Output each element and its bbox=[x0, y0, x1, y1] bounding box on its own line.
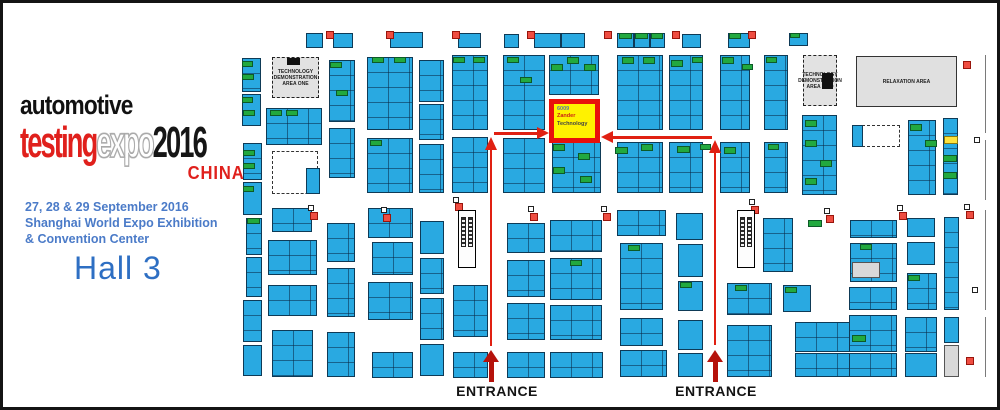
hall-wall bbox=[985, 140, 986, 200]
booth-cell-green bbox=[551, 64, 563, 71]
booth-cell-green bbox=[766, 57, 777, 63]
booth-block bbox=[372, 352, 413, 378]
booth-block bbox=[907, 218, 935, 237]
booth-cell-green bbox=[370, 140, 382, 146]
booth-cell-green bbox=[330, 62, 342, 68]
technology-demonstration-area-two-label: TECHNOLOGY DEMONSTRATION AREA TWO bbox=[796, 70, 844, 92]
booth-block bbox=[453, 285, 488, 337]
booth-cell-green bbox=[641, 144, 653, 151]
booth-cell-green bbox=[943, 172, 957, 179]
booth-cell-green bbox=[243, 186, 254, 192]
booth-cell-green bbox=[805, 178, 817, 185]
booth-block bbox=[849, 353, 897, 377]
booth-block bbox=[246, 257, 262, 297]
booth-block-gray bbox=[852, 262, 880, 278]
booth-cell-green bbox=[242, 97, 253, 103]
booth-block bbox=[849, 287, 897, 310]
pillar-marker-icon bbox=[963, 61, 971, 69]
booth-cell-green bbox=[270, 110, 282, 116]
booth-block bbox=[329, 128, 355, 178]
booth-block bbox=[367, 57, 413, 130]
booth-cell-green bbox=[820, 160, 832, 167]
booth-cell-green bbox=[805, 120, 817, 127]
pillar-marker-icon bbox=[530, 213, 538, 221]
booth-cell-green bbox=[729, 33, 741, 39]
route-line-left-horizontal bbox=[494, 132, 538, 135]
booth-block bbox=[272, 208, 312, 232]
booth-block bbox=[306, 168, 320, 194]
route-arrowhead-right-up-icon bbox=[709, 140, 721, 153]
booth-cell-green bbox=[908, 275, 920, 281]
booth-cell-green bbox=[580, 176, 592, 183]
booth-cell-green bbox=[680, 282, 692, 288]
booth-block bbox=[507, 260, 545, 297]
booth-block bbox=[617, 55, 663, 130]
tech-area-one-stage bbox=[287, 58, 300, 65]
booth-block bbox=[850, 220, 897, 238]
booth-block bbox=[504, 34, 519, 48]
booth-block bbox=[272, 330, 313, 377]
entrance-label-right: ENTRANCE bbox=[656, 383, 776, 399]
booth-cell-green bbox=[735, 285, 747, 291]
booth-block-gray bbox=[944, 345, 959, 377]
booth-block bbox=[420, 258, 444, 294]
route-line-right-vertical bbox=[714, 153, 716, 345]
entrance-arrowhead-right-icon bbox=[707, 350, 723, 362]
booth-block bbox=[306, 33, 323, 48]
booth-block bbox=[764, 55, 788, 130]
highlighted-booth-name2: Technology bbox=[554, 121, 595, 128]
booth-block bbox=[795, 322, 853, 352]
booth-block bbox=[368, 282, 413, 320]
booth-cell-green bbox=[567, 57, 579, 64]
booth-block bbox=[727, 325, 772, 377]
entrance-arrow-left bbox=[489, 360, 494, 382]
pillar-marker-icon bbox=[310, 212, 318, 220]
booth-block bbox=[550, 220, 602, 252]
technology-demonstration-area-one-label: TECHNOLOGY DEMONSTRATION AREA ONE bbox=[272, 67, 320, 89]
highlighted-booth-number: 6009 bbox=[554, 104, 595, 113]
route-line-right-horizontal bbox=[613, 136, 712, 139]
booth-cell-green bbox=[860, 244, 872, 250]
booth-block bbox=[550, 352, 603, 378]
booth-block bbox=[678, 244, 703, 277]
route-arrowhead-into-booth-right-icon bbox=[601, 131, 613, 143]
relaxation-area: RELAXATION AREA bbox=[856, 56, 957, 107]
booth-block bbox=[420, 344, 444, 376]
hall-wall bbox=[985, 210, 986, 310]
pillar-marker-icon bbox=[604, 31, 612, 39]
booth-cell-green bbox=[852, 335, 866, 342]
column-marker-icon bbox=[308, 205, 314, 211]
booth-cell-green bbox=[671, 60, 683, 67]
booth-cell-green bbox=[677, 146, 690, 153]
pillar-marker-icon bbox=[899, 212, 907, 220]
column-marker-icon bbox=[964, 204, 970, 210]
booth-cell-green bbox=[724, 147, 736, 154]
column-marker-icon bbox=[528, 206, 534, 212]
booth-block bbox=[368, 208, 413, 238]
booth-block bbox=[503, 138, 545, 193]
pillar-marker-icon bbox=[383, 214, 391, 222]
booth-cell-green bbox=[473, 57, 485, 63]
entrance-arrowhead-left-icon bbox=[483, 350, 499, 362]
booth-cell-green bbox=[242, 74, 254, 80]
booth-block bbox=[268, 285, 317, 316]
booth-block bbox=[727, 283, 772, 315]
booth-block bbox=[534, 33, 561, 48]
pillar-marker-icon bbox=[966, 357, 974, 365]
booth-block bbox=[507, 223, 545, 253]
booth-cell-green bbox=[286, 110, 298, 116]
escalator-icon bbox=[737, 210, 755, 268]
booth-block bbox=[420, 298, 444, 340]
booth-block bbox=[420, 221, 444, 254]
booth-cell-green bbox=[635, 33, 648, 39]
booth-block bbox=[243, 300, 262, 342]
booth-block bbox=[327, 332, 355, 377]
booth-cell-green bbox=[336, 90, 348, 96]
booth-cell-green bbox=[520, 77, 532, 83]
booth-block bbox=[243, 143, 262, 180]
booth-block bbox=[676, 213, 703, 240]
booth-cell-green bbox=[247, 218, 260, 224]
booth-block bbox=[617, 210, 666, 236]
column-marker-icon bbox=[381, 207, 387, 213]
booth-block bbox=[419, 144, 444, 193]
pillar-marker-icon bbox=[748, 31, 756, 39]
booth-cell-green bbox=[242, 61, 253, 67]
highlighted-booth-name: Zander bbox=[554, 113, 595, 120]
column-marker-icon bbox=[897, 205, 903, 211]
booth-block bbox=[795, 353, 853, 377]
booth-block bbox=[327, 223, 355, 262]
column-marker-icon bbox=[974, 137, 980, 143]
booth-block bbox=[390, 32, 423, 48]
booth-cell-green bbox=[910, 124, 922, 131]
column-marker-icon bbox=[453, 197, 459, 203]
booth-block bbox=[372, 242, 413, 275]
pillar-marker-icon bbox=[527, 31, 535, 39]
booth-cell-green bbox=[722, 57, 734, 64]
booth-block bbox=[849, 315, 897, 352]
booth-block bbox=[620, 243, 663, 310]
highlighted-booth: 6009 Zander Technology bbox=[549, 99, 600, 143]
hall-wall bbox=[985, 55, 986, 133]
booth-block bbox=[503, 55, 545, 130]
pillar-marker-icon bbox=[603, 213, 611, 221]
booth-block bbox=[243, 345, 262, 376]
booth-block bbox=[905, 317, 937, 352]
pillar-marker-icon bbox=[966, 211, 974, 219]
hall-wall bbox=[985, 317, 986, 377]
booth-block bbox=[419, 60, 444, 102]
booth-block bbox=[327, 268, 355, 317]
route-arrowhead-into-booth-left-icon bbox=[537, 127, 549, 139]
booth-cell-green bbox=[372, 57, 384, 63]
booth-cell-green bbox=[643, 57, 655, 64]
entrance-label-left: ENTRANCE bbox=[437, 383, 557, 399]
booth-cell-green bbox=[584, 64, 596, 71]
booth-cell-green bbox=[615, 147, 628, 154]
booth-block bbox=[944, 217, 959, 310]
booth-block bbox=[620, 350, 667, 377]
booth-cell-green bbox=[243, 150, 255, 156]
booth-block bbox=[763, 218, 793, 272]
route-line-left-vertical bbox=[490, 150, 492, 346]
booth-block bbox=[561, 33, 585, 48]
booth-cell-green bbox=[553, 167, 565, 174]
booth-cell-green bbox=[578, 153, 590, 160]
booth-cell-green bbox=[742, 64, 753, 70]
booth-cell-green bbox=[628, 245, 640, 251]
booth-cell-green bbox=[692, 57, 703, 63]
booth-cell-green bbox=[394, 57, 406, 63]
booth-block bbox=[550, 305, 602, 340]
column-marker-icon bbox=[749, 199, 755, 205]
booth-block bbox=[507, 303, 545, 340]
floor-plan: TECHNOLOGY DEMONSTRATION AREA ONE TECHNO… bbox=[0, 0, 1000, 410]
booth-block bbox=[678, 353, 703, 377]
booth-cell-green bbox=[553, 144, 565, 151]
booth-block bbox=[333, 33, 353, 48]
escalator-icon bbox=[458, 210, 476, 268]
booth-cell-green bbox=[785, 287, 797, 293]
booth-block bbox=[852, 125, 863, 147]
booth-block bbox=[620, 318, 663, 346]
entrance-arrow-right bbox=[713, 360, 718, 382]
booth-block bbox=[682, 34, 701, 48]
booth-block bbox=[452, 137, 488, 193]
booth-block bbox=[908, 120, 936, 195]
pillar-marker-icon bbox=[452, 31, 460, 39]
booth-block bbox=[905, 353, 937, 377]
booth-cell-green bbox=[570, 260, 582, 266]
booth-cell-green bbox=[243, 110, 255, 116]
column-marker-icon bbox=[824, 208, 830, 214]
route-arrowhead-left-up-icon bbox=[485, 137, 497, 150]
booth-cell-green bbox=[243, 163, 255, 169]
booth-block-gold bbox=[944, 136, 958, 144]
booth-block bbox=[907, 242, 935, 265]
pillar-marker-icon bbox=[826, 215, 834, 223]
booth-cell-green bbox=[768, 144, 779, 150]
booth-cell-green bbox=[507, 57, 519, 63]
booth-block bbox=[419, 104, 444, 140]
booth-block bbox=[678, 320, 703, 350]
booth-cell-green bbox=[943, 155, 957, 162]
booth-cell-green bbox=[790, 33, 800, 38]
column-marker-icon bbox=[601, 206, 607, 212]
column-marker-icon bbox=[972, 287, 978, 293]
relaxation-area-label: RELAXATION AREA bbox=[881, 77, 933, 87]
booth-cell-green bbox=[805, 140, 817, 147]
booth-cell-green bbox=[619, 33, 632, 39]
booth-cell-green bbox=[651, 33, 663, 39]
booth-block bbox=[944, 317, 959, 343]
booth-cell-green bbox=[808, 220, 822, 227]
booth-block bbox=[458, 33, 481, 48]
booth-cell-green bbox=[622, 57, 634, 64]
pillar-marker-icon bbox=[386, 31, 394, 39]
booth-block bbox=[452, 55, 488, 130]
pillar-marker-icon bbox=[672, 31, 680, 39]
pillar-marker-icon bbox=[326, 31, 334, 39]
booth-cell-green bbox=[453, 57, 465, 63]
booth-cell-green bbox=[925, 140, 937, 147]
booth-block bbox=[507, 352, 545, 378]
booth-block bbox=[268, 240, 317, 275]
tech-area-two-stage bbox=[822, 73, 833, 89]
booth-block bbox=[367, 138, 413, 193]
